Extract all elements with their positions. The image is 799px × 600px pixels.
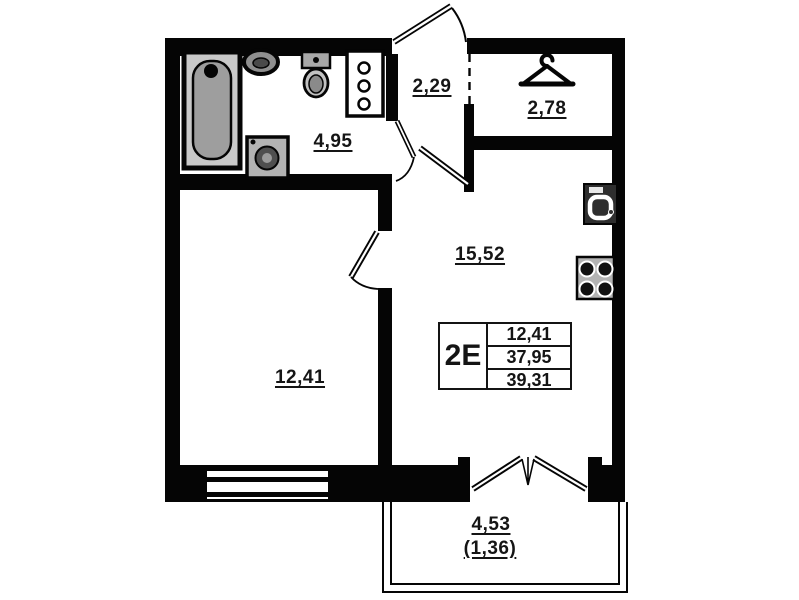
bathtub-icon (184, 52, 240, 168)
window-line (207, 477, 328, 482)
wall-bathroom-hall (386, 54, 398, 121)
balcony-coefficient-label: (1,36) (464, 538, 517, 560)
window-line (207, 465, 328, 471)
wall-bottom-middle (328, 465, 470, 502)
sink-icon (244, 50, 278, 74)
bedroom-area-label: 12,41 (275, 367, 325, 389)
kitchen-door (420, 148, 468, 184)
door-swing-arc (452, 8, 466, 42)
door-swing-arc (396, 157, 414, 181)
kitchen-area-label: 15,52 (455, 244, 505, 266)
unit-info-table: 2E 12,41 37,95 39,31 (438, 322, 572, 390)
hallway-area-label: 2,29 (413, 76, 452, 98)
wall-bedroom-kitchen-upper (378, 190, 392, 231)
window-line (207, 499, 328, 502)
window-line (207, 492, 328, 497)
unit-total-area: 39,31 (488, 370, 570, 391)
floor-plan: 4,95 2,29 2,78 15,52 12,41 4,53 (1,36) 2… (0, 0, 799, 600)
kitchen-sink-icon (584, 184, 617, 224)
hanger-icon (521, 55, 573, 84)
toilet-icon (302, 52, 330, 97)
bathroom-area-label: 4,95 (314, 131, 353, 153)
unit-living-area: 12,41 (488, 324, 570, 347)
floor-plan-drawing (0, 0, 799, 600)
wall-top-wardrobe (467, 38, 625, 54)
unit-areas: 12,41 37,95 39,31 (488, 324, 570, 388)
shaft-icon (347, 51, 383, 116)
balcony-door-left-jamb (458, 457, 470, 502)
wall-bedroom-kitchen-lower (378, 288, 392, 465)
balcony-door-right-jamb (588, 457, 602, 502)
wall-wardrobe-bottom (464, 136, 612, 150)
unit-area: 37,95 (488, 347, 570, 370)
door-swing-arc (351, 277, 378, 289)
wall-left (165, 38, 180, 502)
washing-machine-icon (247, 137, 288, 178)
wall-bottom-left (165, 465, 207, 502)
balcony-door-center-mark (522, 457, 534, 485)
balcony-area-label: 4,53 (472, 514, 511, 536)
balcony-door (473, 457, 586, 489)
bedroom-door (351, 232, 378, 289)
bedroom-window (207, 465, 328, 502)
stove-icon (577, 257, 614, 299)
bathroom-door (396, 121, 414, 181)
unit-code: 2E (440, 324, 488, 388)
entrance-door (394, 6, 466, 42)
wardrobe-area-label: 2,78 (528, 98, 567, 120)
